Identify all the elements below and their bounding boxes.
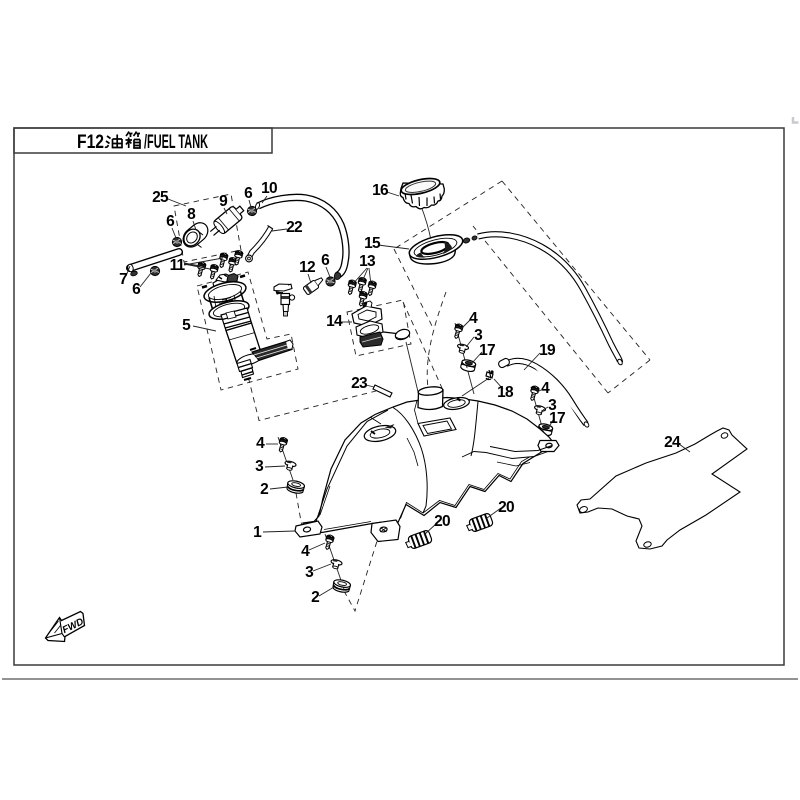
svg-text:25: 25 — [152, 189, 169, 206]
svg-text:23: 23 — [351, 375, 368, 392]
svg-text:5: 5 — [182, 317, 191, 334]
svg-text:4: 4 — [541, 380, 550, 397]
svg-text:2: 2 — [311, 589, 319, 606]
svg-text:F12: F12 — [77, 131, 104, 153]
svg-text:18: 18 — [497, 384, 514, 401]
svg-text:6: 6 — [166, 213, 175, 230]
svg-text:6: 6 — [244, 185, 253, 202]
svg-text:10: 10 — [261, 180, 277, 197]
svg-text:6: 6 — [132, 281, 141, 298]
svg-text:24: 24 — [664, 434, 681, 451]
svg-text:11: 11 — [170, 257, 186, 274]
svg-text:12: 12 — [299, 259, 315, 276]
svg-text:22: 22 — [286, 219, 302, 236]
svg-text:3: 3 — [305, 564, 314, 581]
svg-text:17: 17 — [549, 410, 565, 427]
svg-text:2: 2 — [260, 481, 268, 498]
svg-text:7: 7 — [119, 271, 127, 288]
svg-text:6: 6 — [321, 252, 330, 269]
svg-text:/FUEL TANK: /FUEL TANK — [144, 131, 208, 153]
svg-text:16: 16 — [372, 182, 389, 199]
svg-text:13: 13 — [359, 253, 376, 270]
svg-text:20: 20 — [434, 513, 450, 530]
svg-text:1: 1 — [253, 524, 262, 541]
svg-text:8: 8 — [187, 206, 196, 223]
svg-text:15: 15 — [364, 235, 381, 252]
svg-text:17: 17 — [479, 342, 495, 359]
svg-text:20: 20 — [498, 499, 514, 516]
svg-text:9: 9 — [219, 193, 228, 210]
svg-text:3: 3 — [255, 458, 264, 475]
svg-text:19: 19 — [539, 342, 556, 359]
svg-text:4: 4 — [301, 543, 310, 560]
svg-text:4: 4 — [469, 310, 478, 327]
svg-text:14: 14 — [326, 313, 343, 330]
svg-text:4: 4 — [256, 435, 265, 452]
